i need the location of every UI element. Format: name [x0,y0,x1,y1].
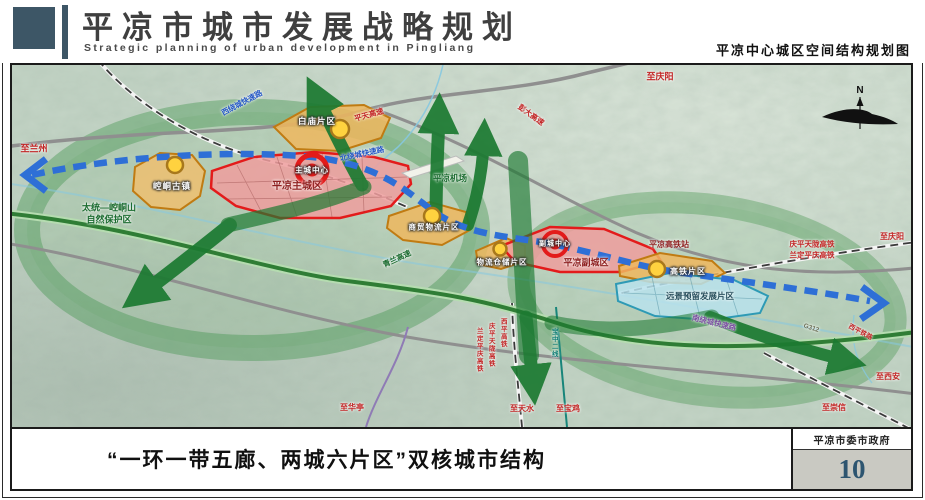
main-city-center-dot [306,164,319,177]
sub-city-center-dot [550,239,561,250]
caption-area: “一环一带五廊、两城六片区”双核城市结构 [12,429,791,489]
map-subtitle: 平凉中心城区空间结构规划图 [716,40,911,59]
map-graphic: N [12,65,911,427]
header: 平凉市城市发展战略规划 Strategic planning of urban … [0,0,925,63]
logo-square [13,7,55,49]
content-frame: N 至兰州太统—崆峒山自然保护区崆峒古镇平凉主城区主城中心白庙片区西绕城快速路平… [10,63,913,491]
page-title-english: Strategic planning of urban development … [84,42,475,54]
map-container: N 至兰州太统—崆峒山自然保护区崆峒古镇平凉主城区主城中心白庙片区西绕城快速路平… [12,65,911,429]
footer: “一环一带五廊、两城六片区”双核城市结构 平凉市委市政府 10 [12,429,911,489]
structure-caption: “一环一带五廊、两城六片区”双核城市结构 [107,444,546,474]
page-number: 10 [793,450,911,489]
svg-text:N: N [856,85,863,96]
divider-bar [62,5,68,59]
agency-label: 平凉市委市政府 [793,429,911,450]
page-box: 平凉市委市政府 10 [791,429,911,489]
page-title: 平凉市城市发展战略规划 [82,2,522,47]
